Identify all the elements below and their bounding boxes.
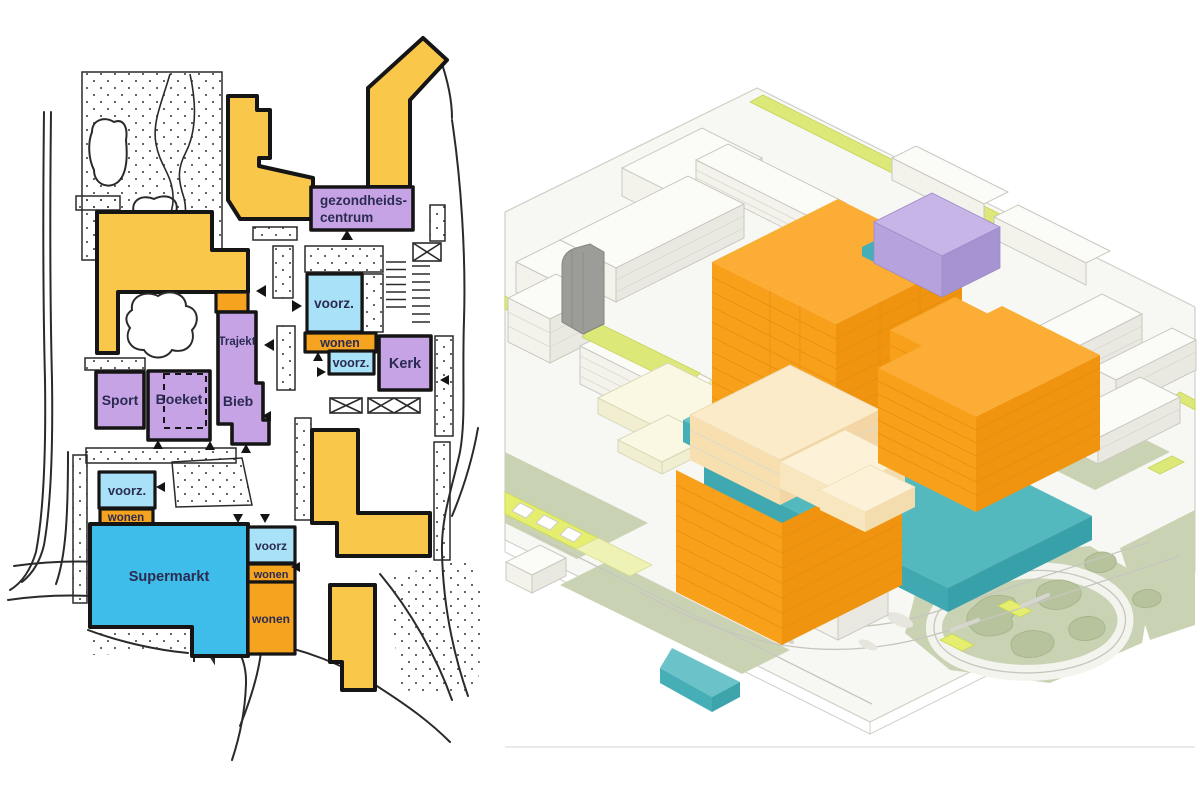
label-boeket: Boeket [156,391,203,407]
building-orange-link [216,292,248,312]
label-supermarkt: Supermarkt [129,569,210,585]
label-voorz-top: voorz. [314,296,354,311]
label-voorz-mid: voorz. [333,356,370,370]
park-blob [89,119,127,185]
label-sport: Sport [102,392,139,408]
label-wonen-left: wonen [107,512,144,524]
building-trajekt-bieb [218,312,269,444]
label-voorz-right: voorz [255,539,287,553]
label-gezondheidscentrum-2: centrum [320,210,373,225]
building-yellow-northeast [368,38,447,187]
label-trajekt: Trajekt [218,336,255,348]
label-wonen-right-large: wonen [251,612,290,626]
label-voorz-left: voorz. [108,483,146,498]
label-kerk: Kerk [389,356,422,372]
urban-plan-figure: gezondheids- centrum voorz. wonen voorz.… [0,0,1200,812]
label-gezondheidscentrum-1: gezondheids- [320,193,407,208]
label-wonen-top: wonen [319,336,360,350]
label-bieb: Bieb [223,393,253,409]
courtyard-blob [126,292,196,357]
label-wonen-right-small: wonen [253,569,289,581]
building-yellow-southeast [330,585,375,690]
building-yellow-north [228,96,313,219]
building-yellow-east-L [312,430,430,556]
plan-panel: gezondheids- centrum voorz. wonen voorz.… [0,0,505,812]
axon-panel [500,0,1200,812]
